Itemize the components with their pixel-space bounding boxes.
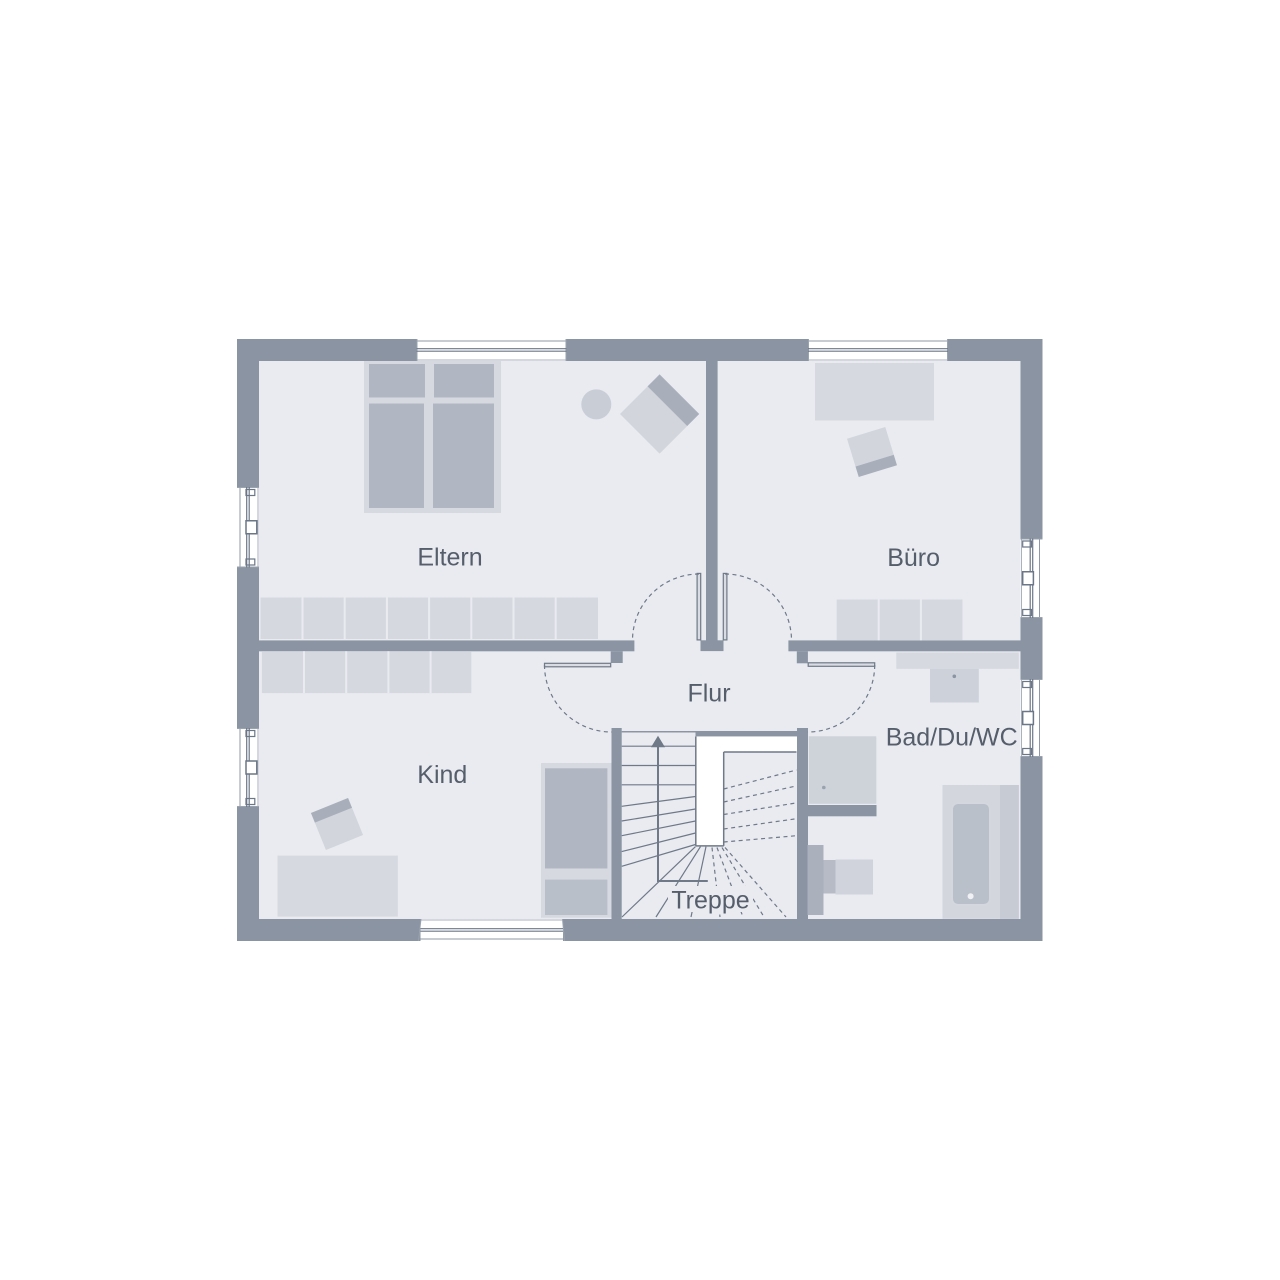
svg-text:Büro: Büro	[887, 544, 940, 572]
svg-text:Eltern: Eltern	[417, 544, 482, 572]
svg-text:Treppe: Treppe	[671, 887, 749, 915]
svg-text:Kind: Kind	[417, 761, 467, 789]
svg-text:Flur: Flur	[687, 680, 730, 708]
svg-text:Bad/Du/WC: Bad/Du/WC	[886, 724, 1018, 752]
